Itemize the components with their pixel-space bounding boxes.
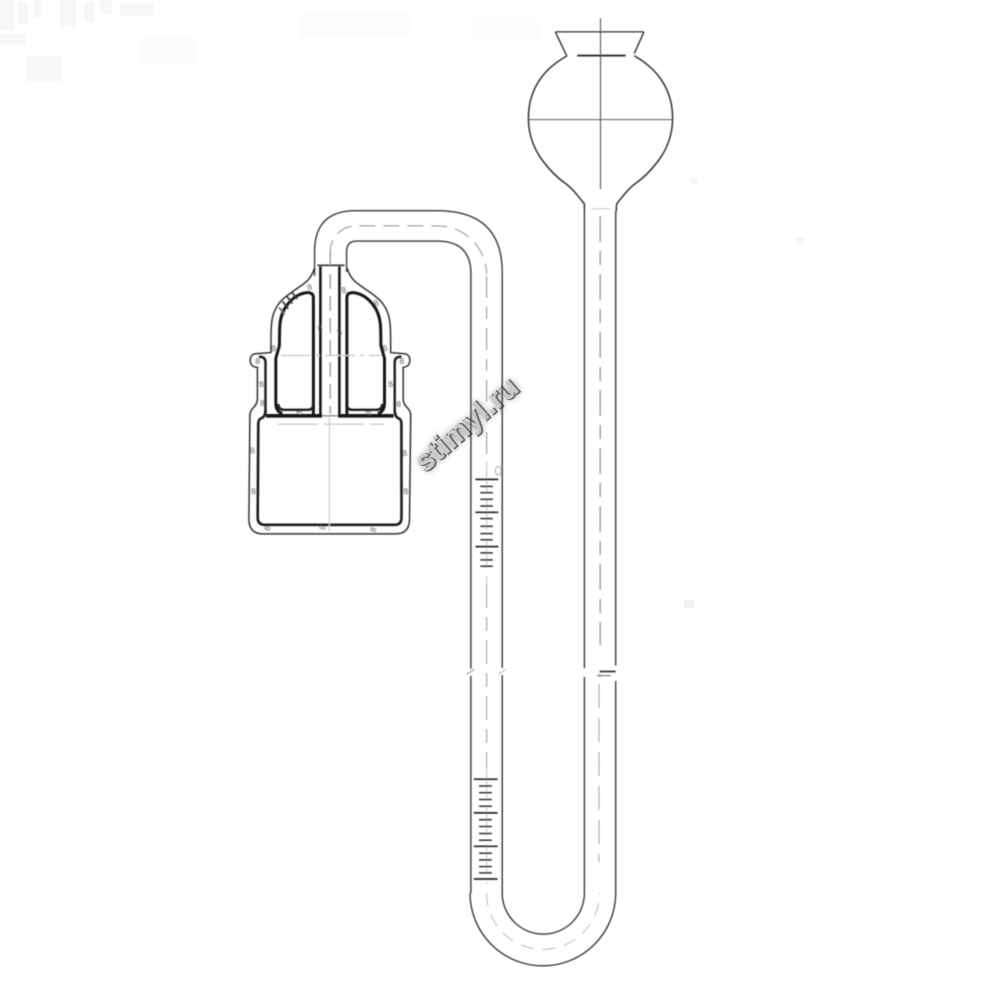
svg-text:8: 8	[260, 398, 265, 408]
svg-text:8: 8	[255, 356, 260, 366]
svg-text:8: 8	[396, 399, 401, 409]
svg-text:8: 8	[399, 356, 404, 366]
